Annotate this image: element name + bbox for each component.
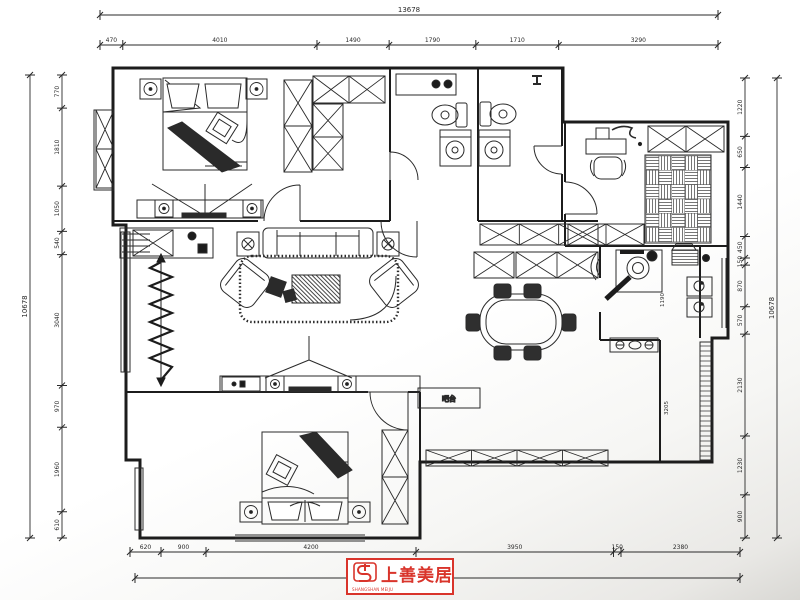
dim-label: 450 bbox=[737, 241, 744, 253]
dim-label: 3290 bbox=[631, 37, 646, 44]
dim-label: 1960 bbox=[54, 462, 61, 477]
dim-label: 2380 bbox=[673, 544, 688, 551]
inner-dimensions: 1190 3205 bbox=[660, 293, 670, 415]
kitchen-fixtures bbox=[591, 244, 712, 352]
dim-label: 10678 bbox=[21, 295, 29, 317]
brand-logo: SHANGSHAN MEIJU 上善美居 bbox=[346, 558, 454, 595]
dim-label: 1050 bbox=[54, 201, 61, 216]
dim-label: 150 bbox=[612, 544, 624, 551]
dim-label: 620 bbox=[140, 544, 152, 551]
dim-label: 2130 bbox=[737, 377, 744, 392]
interior-walls bbox=[113, 68, 728, 462]
dim-label: 540 bbox=[54, 237, 61, 249]
tatami-mat bbox=[646, 156, 711, 242]
dim-label: 610 bbox=[54, 519, 61, 531]
dim-label: 4010 bbox=[212, 37, 227, 44]
dim-label: 13678 bbox=[398, 6, 420, 14]
dim-label: 1810 bbox=[54, 139, 61, 154]
brand-logo-mark-icon: SHANGSHAN MEIJU bbox=[352, 562, 378, 592]
dim-label: 570 bbox=[737, 315, 744, 327]
dim-label: 1790 bbox=[425, 37, 440, 44]
dim-balcony-height: 3205 bbox=[664, 401, 670, 415]
dim-label: 3950 bbox=[507, 544, 522, 551]
floor-plan-drawing: 吧台 4704010149017901710329013678620900420… bbox=[0, 0, 800, 600]
brand-name: 上善美居 bbox=[381, 568, 453, 585]
dim-label: 870 bbox=[737, 280, 744, 292]
dim-label: 10678 bbox=[768, 297, 776, 319]
brand-tagline: SHANGSHAN MEIJU bbox=[352, 588, 378, 592]
bathroom1-fixtures bbox=[396, 74, 471, 166]
dim-label: 1490 bbox=[345, 37, 360, 44]
dim-label: 3040 bbox=[54, 312, 61, 327]
bathroom2-fixtures bbox=[479, 76, 542, 166]
dim-label: 1220 bbox=[737, 99, 744, 114]
bar-counter: 吧台 bbox=[418, 388, 480, 408]
dim-label: 150 bbox=[737, 256, 744, 268]
dim-label: 900 bbox=[737, 511, 744, 523]
dim-label: 1440 bbox=[737, 194, 744, 209]
dim-label: 1710 bbox=[510, 37, 525, 44]
master-bedroom-furniture bbox=[240, 432, 370, 524]
dim-kitchen-width: 1190 bbox=[660, 293, 666, 307]
bar-counter-label: 吧台 bbox=[442, 394, 456, 403]
dim-label: 900 bbox=[178, 544, 190, 551]
dim-label: 4200 bbox=[303, 544, 318, 551]
dim-label: 470 bbox=[106, 37, 118, 44]
dim-label: 770 bbox=[54, 86, 61, 98]
floor-plan-page: 吧台 4704010149017901710329013678620900420… bbox=[0, 0, 800, 600]
dining-set bbox=[466, 284, 576, 360]
dim-label: 1230 bbox=[737, 458, 744, 473]
dim-label: 970 bbox=[54, 401, 61, 413]
dim-label: 650 bbox=[737, 146, 744, 158]
drying-rack-symbol bbox=[150, 254, 172, 386]
windows bbox=[94, 110, 726, 541]
